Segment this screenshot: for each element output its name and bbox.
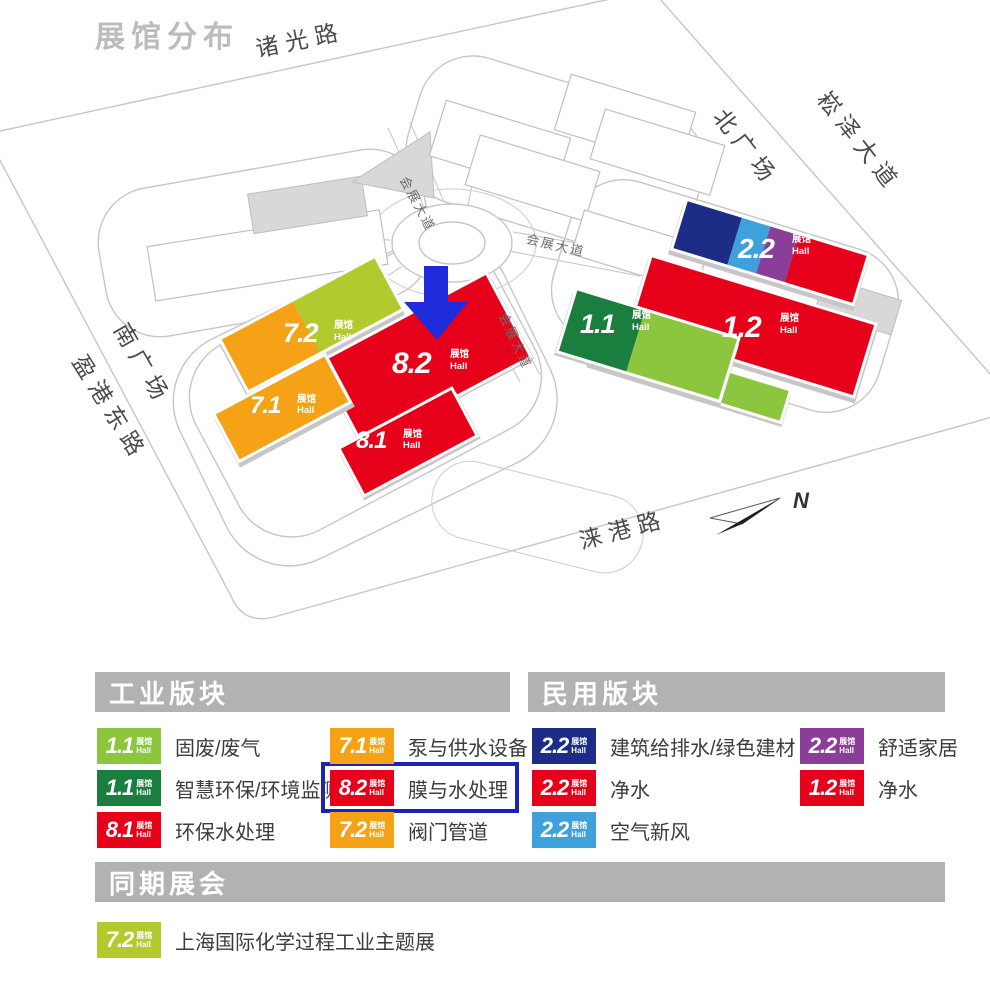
hall-badge-7-1: 7.1 展馆Hall: [330, 728, 394, 764]
hall-badge-1-1: 1.1 展馆Hall: [97, 728, 161, 764]
legend-label: 固废/废气: [175, 732, 261, 761]
compass-n-label: N: [793, 488, 810, 513]
legend-item: 1.1 展馆Hall 固废/废气: [97, 728, 261, 764]
legend-item: 2.2 展馆Hall 建筑给排水/绿色建材: [532, 728, 796, 764]
hall-badge-2-2: 2.2 展馆Hall: [800, 728, 864, 764]
central-ring: [368, 189, 536, 297]
civil-section-header: 民用版块: [528, 672, 945, 712]
hall-7-1-sub-en: Hall: [297, 405, 314, 416]
legend-label: 净水: [610, 774, 650, 803]
hall-1-2-sub-en: Hall: [780, 325, 797, 336]
hall-badge-1-2: 1.2 展馆Hall: [800, 770, 864, 806]
legend-label: 阀门管道: [408, 816, 488, 845]
industrial-section-header: 工业版块: [95, 672, 510, 712]
legend-label: 环保水处理: [175, 816, 275, 845]
hall-8-2-label: 8.2: [392, 347, 432, 380]
hall-7-2-sub-zh: 展馆: [334, 319, 354, 331]
hall-8-1-sub-en: Hall: [403, 440, 420, 451]
legend-label: 净水: [878, 774, 918, 803]
hall-8-2-sub-zh: 展馆: [450, 348, 470, 360]
legend-item: 1.1 展馆Hall 智慧环保/环境监测: [97, 770, 341, 806]
legend-item: 2.2 展馆Hall 净水: [532, 770, 650, 806]
legend-item: 7.2 展馆Hall 阀门管道: [330, 812, 488, 848]
legend-label: 空气新风: [610, 816, 690, 845]
hall-badge-2-2: 2.2 展馆Hall: [532, 770, 596, 806]
legend-label: 舒适家居: [878, 732, 958, 761]
legend-item: 7.1 展馆Hall 泵与供水设备: [330, 728, 528, 764]
legend-label: 膜与水处理: [408, 774, 508, 803]
hall-2-2-label: 2.2: [737, 233, 775, 264]
venue-map: 7.2 展馆 Hall 8.2 展馆 Hall 7.1 展馆 Hall 8.1 …: [0, 0, 990, 665]
hall-badge-2-2: 2.2 展馆Hall: [532, 812, 596, 848]
compass-icon: N: [710, 488, 810, 535]
legend-item: 7.2 展馆Hall 上海国际化学过程工业主题展: [97, 922, 435, 958]
hall-7-1-label: 7.1: [250, 392, 281, 419]
legend-item: 8.1 展馆Hall 环保水处理: [97, 812, 275, 848]
legend-label: 建筑给排水/绿色建材: [610, 732, 796, 761]
legend-label: 上海国际化学过程工业主题展: [175, 926, 435, 955]
hall-8-2-sub-en: Hall: [450, 361, 467, 372]
hall-7-2-label: 7.2: [283, 318, 319, 348]
hall-1-2-label: 1.2: [722, 311, 762, 344]
legend-label: 泵与供水设备: [408, 732, 528, 761]
hall-7-1-sub-zh: 展馆: [297, 393, 317, 405]
hall-2-2-sub-en: Hall: [792, 246, 809, 257]
hall-8-1-sub-zh: 展馆: [403, 428, 423, 440]
hall-badge-8-2: 8.2 展馆Hall: [330, 770, 394, 806]
hall-badge-7-2: 7.2 展馆Hall: [330, 812, 394, 848]
hall-badge-1-1: 1.1 展馆Hall: [97, 770, 161, 806]
page: 展馆分布: [0, 0, 990, 990]
hall-2-2-sub-zh: 展馆: [792, 233, 812, 245]
legend-item: 2.2 展馆Hall 舒适家居: [800, 728, 958, 764]
road-label-laigang: 涞港路: [576, 506, 670, 554]
legend-label: 智慧环保/环境监测: [175, 774, 341, 803]
hall-8-1-label: 8.1: [356, 427, 387, 454]
legend-item: 1.2 展馆Hall 净水: [800, 770, 918, 806]
hall-1-1-sub-zh: 展馆: [632, 309, 652, 321]
hall-1-2-sub-zh: 展馆: [780, 312, 800, 324]
legend-item: 2.2 展馆Hall 空气新风: [532, 812, 690, 848]
legend-item-highlighted: 8.2 展馆Hall 膜与水处理: [330, 770, 508, 806]
hall-7-2-sub-en: Hall: [334, 332, 351, 343]
concurrent-section-header: 同期展会: [95, 862, 945, 902]
hall-badge-7-2: 7.2 展馆Hall: [97, 922, 161, 958]
road-label-zhuguang: 诸光路: [253, 18, 346, 62]
hall-1-1-label: 1.1: [580, 309, 615, 339]
hall-badge-2-2: 2.2 展馆Hall: [532, 728, 596, 764]
hall-1-1-sub-en: Hall: [632, 322, 649, 333]
road-label-songze: 崧泽大道: [812, 86, 906, 197]
hall-badge-8-1: 8.1 展馆Hall: [97, 812, 161, 848]
